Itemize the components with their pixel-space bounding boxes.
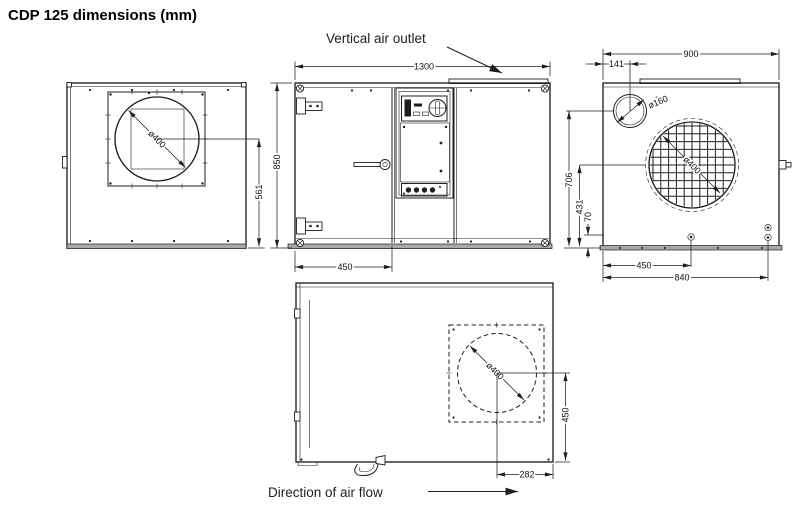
vertical-air-outlet-label: Vertical air outlet [326, 31, 426, 46]
dim-duct-height-706: 706 [564, 111, 601, 248]
dim-grille-height-431: 431 [575, 165, 646, 246]
contactor [405, 100, 412, 117]
dim-label-1300: 1300 [414, 62, 434, 72]
dim-label-840: 840 [674, 273, 689, 283]
side-view-right: ø160 ø400 [564, 49, 791, 283]
side-connections [765, 224, 771, 240]
dim-label-duct-diameter: ø160 [647, 93, 670, 110]
fan-grille: ø400 [646, 119, 739, 212]
air-flow-label: Direction of air flow [268, 485, 383, 500]
door-hinge-bottom [297, 218, 323, 234]
side-view-left: ø400 561 [63, 83, 265, 249]
control-panel [396, 88, 453, 198]
dim-label-706: 706 [564, 172, 574, 187]
drain-hose [355, 456, 385, 476]
dim-label-850: 850 [272, 154, 282, 169]
dim-label-70: 70 [583, 212, 593, 222]
cabinet-outline [296, 283, 553, 462]
dim-door-450: 450 [295, 246, 392, 272]
dim-width-1300: 1300 [295, 62, 550, 81]
dim-label-900: 900 [683, 49, 698, 59]
dim-outlet-282: 282 [497, 373, 553, 480]
edge-fitting [779, 161, 791, 170]
door-handle [354, 160, 390, 170]
label-plate [414, 104, 422, 107]
technical-drawing: ø400 561 [0, 0, 807, 512]
dim-duct-offset-141: 141 [586, 59, 646, 69]
cabinet-outline [67, 83, 246, 248]
dim-label-141: 141 [609, 59, 624, 69]
door-hinge-top [297, 98, 323, 114]
top-view: ø400 450 282 [268, 283, 571, 500]
duct-opening: ø160 [566, 60, 669, 128]
dimension-drawing-page: CDP 125 dimensions (mm) [0, 0, 807, 512]
cabinet-outline [295, 83, 550, 248]
dim-label-282: 282 [519, 470, 534, 480]
air-flow-callout: Direction of air flow [268, 485, 518, 500]
dim-label-450-drain: 450 [636, 261, 651, 271]
dim-label-450-outlet: 450 [561, 407, 571, 422]
base-strip [67, 244, 246, 249]
callout-arrow [447, 47, 502, 73]
dim-label-561: 561 [254, 184, 264, 199]
dim-label-450-door: 450 [337, 262, 352, 272]
drain-connection [688, 234, 694, 240]
corner-fittings [296, 85, 548, 247]
base-strip [288, 244, 552, 249]
dim-outlet-450: 450 [497, 373, 571, 462]
screws [89, 89, 229, 242]
dim-depth-900: 900 [603, 49, 779, 80]
dim-height-850: 850 [271, 83, 293, 248]
latch [63, 157, 68, 169]
dim-drain-height-70: 70 [583, 212, 604, 258]
front-view: 1300 850 450 Vertical air outlet [271, 31, 553, 272]
main-switch-knob [429, 100, 446, 117]
panel-door [401, 123, 450, 182]
